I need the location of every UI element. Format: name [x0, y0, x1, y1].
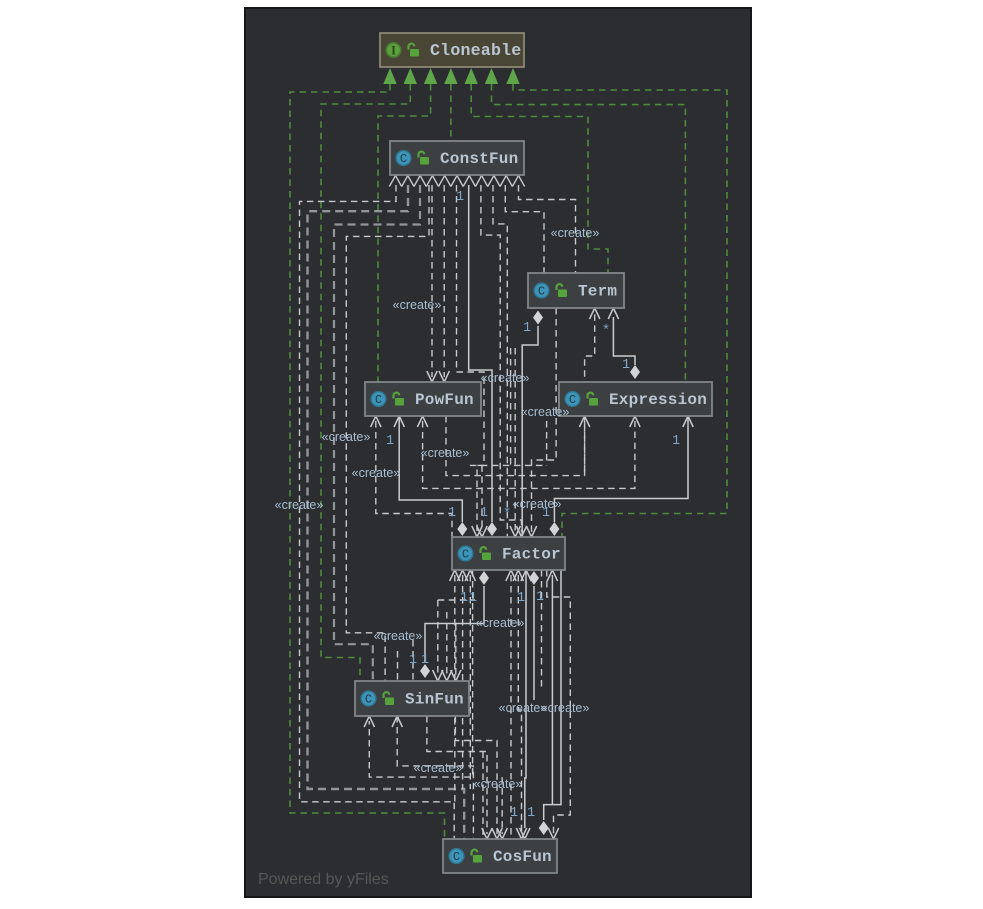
svg-text:1: 1	[456, 190, 464, 205]
svg-text:C: C	[365, 693, 372, 707]
svg-text:1: 1	[622, 358, 630, 373]
svg-text:1: 1	[523, 321, 531, 336]
svg-text:«create»: «create»	[474, 777, 523, 791]
svg-text:«create»: «create»	[393, 298, 442, 312]
svg-text:1: 1	[409, 653, 417, 668]
svg-text:1: 1	[386, 434, 394, 449]
svg-text:1: 1	[517, 591, 525, 606]
svg-text:*: *	[602, 324, 610, 339]
svg-text:«create»: «create»	[476, 616, 525, 630]
svg-text:«create»: «create»	[551, 226, 600, 240]
svg-text:CosFun: CosFun	[493, 848, 552, 866]
svg-text:C: C	[453, 850, 460, 864]
svg-text:1: 1	[448, 506, 456, 521]
svg-text:1: 1	[421, 653, 429, 668]
svg-text:C: C	[538, 285, 545, 299]
svg-text:«create»: «create»	[421, 446, 470, 460]
svg-text:«create»: «create»	[521, 405, 570, 419]
svg-text:C: C	[462, 548, 469, 562]
svg-text:«create»: «create»	[275, 498, 324, 512]
svg-text:Expression: Expression	[609, 391, 707, 409]
svg-text:1: 1	[542, 506, 550, 521]
svg-text:C: C	[400, 152, 407, 166]
svg-text:«create»: «create»	[541, 701, 590, 715]
svg-text:1: 1	[460, 591, 468, 606]
svg-text:«create»: «create»	[322, 430, 371, 444]
svg-text:C: C	[375, 393, 382, 407]
svg-text:*: *	[503, 507, 511, 522]
svg-text:SinFun: SinFun	[405, 691, 464, 709]
svg-text:PowFun: PowFun	[415, 391, 474, 409]
svg-text:1: 1	[536, 590, 544, 605]
svg-text:1: 1	[672, 434, 680, 449]
svg-text:1: 1	[469, 591, 477, 606]
svg-text:I: I	[391, 43, 396, 57]
svg-text:«create»: «create»	[352, 466, 401, 480]
svg-text:Factor: Factor	[502, 546, 561, 564]
svg-text:«create»: «create»	[374, 629, 423, 643]
svg-text:1: 1	[527, 806, 535, 821]
svg-text:1: 1	[510, 806, 518, 821]
svg-text:ConstFun: ConstFun	[440, 150, 518, 168]
svg-text:1: 1	[480, 506, 488, 521]
svg-text:«create»: «create»	[513, 497, 562, 511]
svg-text:C: C	[569, 393, 576, 407]
svg-text:Cloneable: Cloneable	[430, 41, 521, 60]
svg-text:«create»: «create»	[414, 761, 463, 775]
svg-text:Term: Term	[578, 283, 617, 301]
svg-text:Powered by yFiles: Powered by yFiles	[258, 871, 389, 888]
svg-text:«create»: «create»	[481, 371, 530, 385]
